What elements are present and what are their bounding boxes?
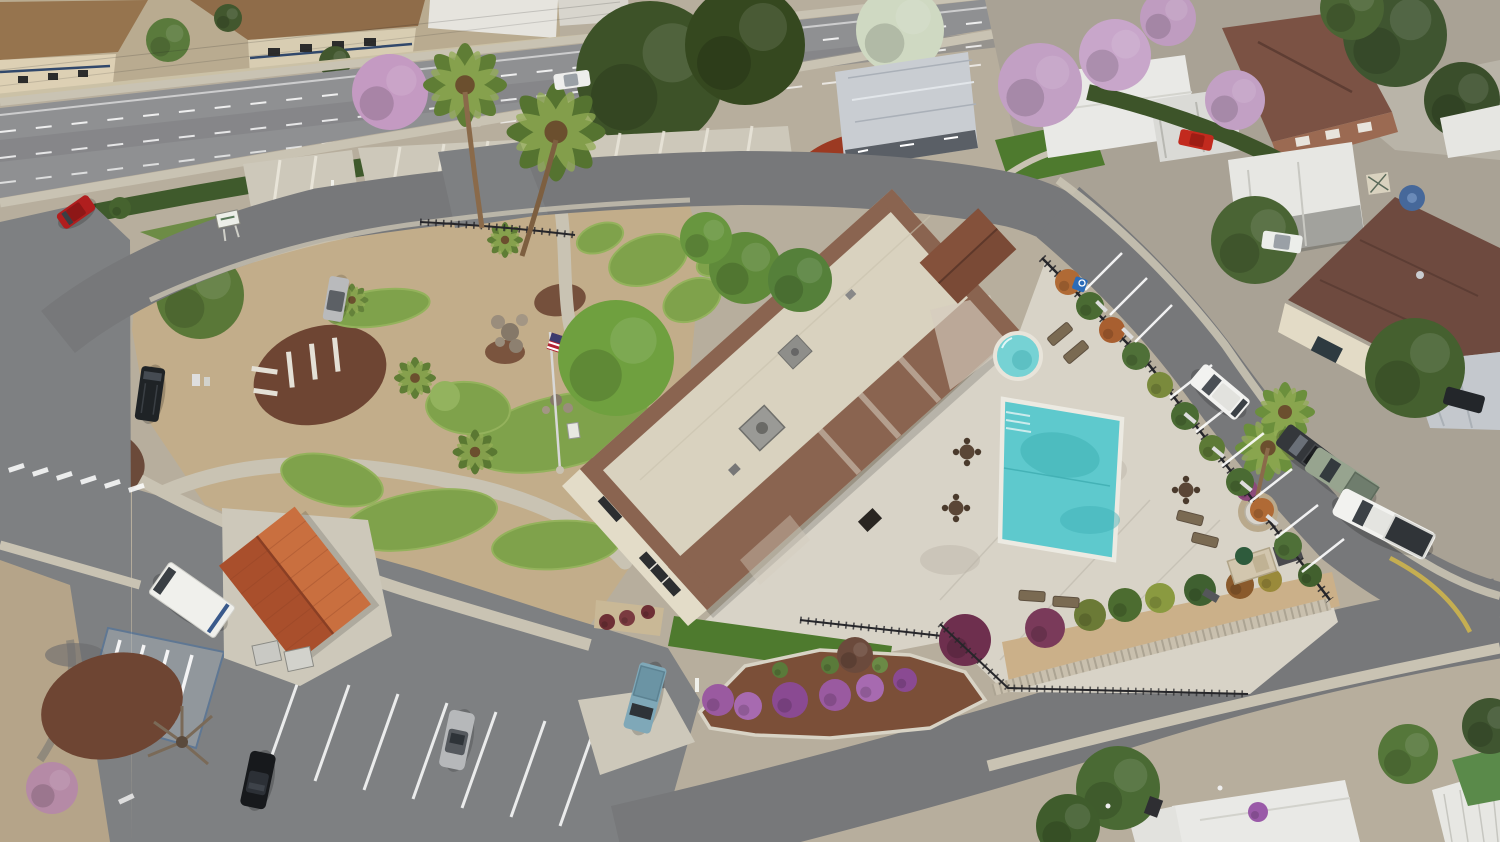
swimming-pool — [1000, 399, 1122, 560]
bollard — [695, 678, 699, 692]
palm-tree — [453, 430, 498, 475]
pink-blossom-tree — [352, 54, 428, 130]
aerial-photo: Aerial drone photograph of a mobile home… — [0, 0, 1500, 842]
purple-shrub — [939, 614, 991, 666]
spa — [995, 333, 1041, 379]
mobile-home-silver-roof — [835, 52, 978, 168]
pink-blossom-tree — [998, 43, 1082, 127]
aerial-scene — [0, 0, 1500, 842]
palm-tree — [394, 357, 436, 399]
roof-vent — [1416, 271, 1424, 279]
tall-palm — [507, 83, 606, 182]
green-umbrella — [1235, 547, 1253, 565]
pink-blossom-tree — [1079, 19, 1151, 91]
shed — [1366, 172, 1391, 195]
big-green-tree — [558, 300, 674, 416]
